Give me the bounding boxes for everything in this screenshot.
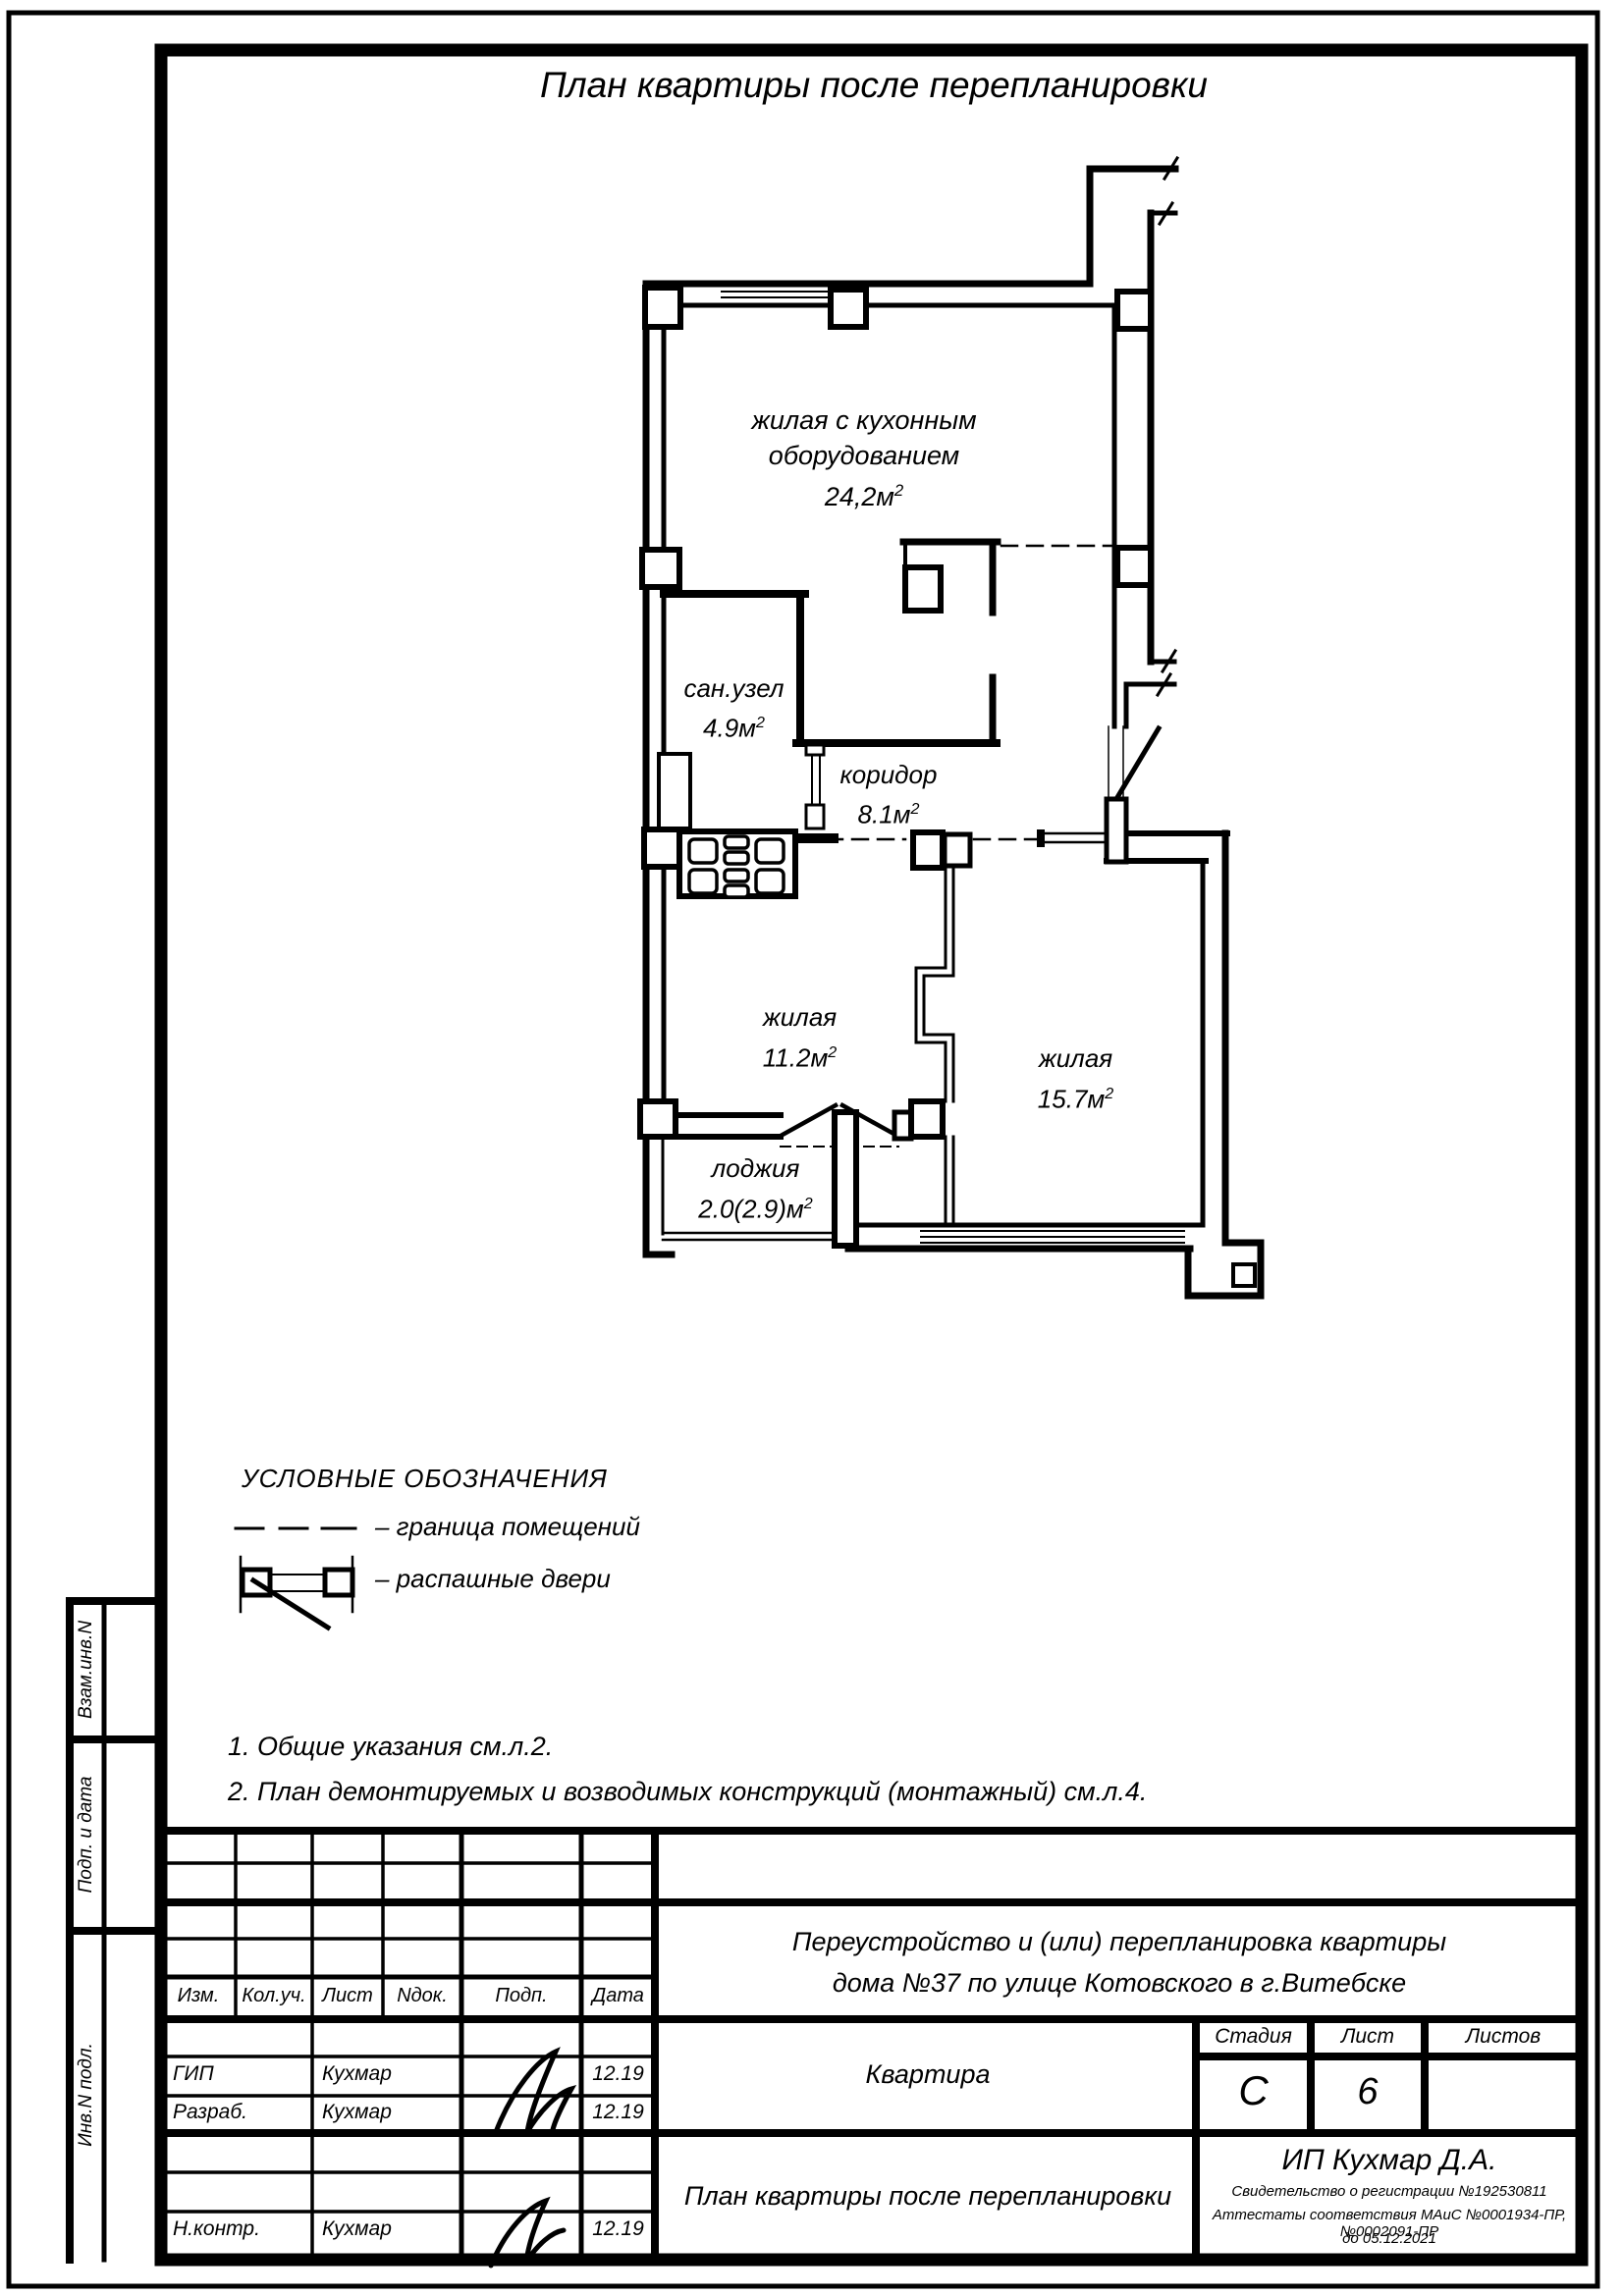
room-label-bathroom: сан.узел 4.9м2 [648, 671, 820, 746]
tb-col-list: Лист [313, 1985, 382, 2007]
room-label-loggia: лоджия 2.0(2.9)м2 [660, 1150, 851, 1227]
tb-project-line2: дома №37 по улице Котовского в г.Витебск… [668, 1968, 1571, 1999]
tb-row-ncontr-date: 12.19 [582, 2217, 654, 2241]
tb-sheets-label: Листов [1427, 2025, 1580, 2049]
room-label-room-15: жилая 15.7м2 [985, 1041, 1166, 1117]
side-label-podp-data: Подп. и дата [76, 1777, 97, 1894]
tb-drawing-title: План квартиры после перепланировки [668, 2181, 1188, 2212]
legend-item-boundary: – граница помещений [375, 1513, 640, 1542]
room-label-room-11: жилая 11.2м2 [709, 999, 891, 1076]
legend-item-doors: – распашные двери [375, 1565, 611, 1594]
note-2: 2. План демонтируемых и возводимых конст… [228, 1777, 1147, 1807]
cupboard [659, 754, 690, 828]
tb-row-razrab-name: Кухмар [322, 2101, 392, 2124]
tb-col-koluch: Кол.уч. [237, 1985, 311, 2007]
tb-row-razrab-date: 12.19 [582, 2101, 654, 2124]
legend-heading: УСЛОВНЫЕ ОБОЗНАЧЕНИЯ [242, 1465, 608, 1494]
room-label-living-kitchen: жилая с кухонным оборудованием 24,2м2 [687, 402, 1041, 514]
drawing-sheet: План квартиры после перепланировки жилая… [0, 0, 1623, 2296]
tb-row-ncontr-role: Н.контр. [173, 2217, 260, 2241]
side-label-inv: Инв.N подл. [76, 2043, 97, 2147]
tb-row-razrab-role: Разраб. [173, 2101, 247, 2124]
side-label-vzam: Взам.инв.N [76, 1621, 97, 1719]
tb-cert-1: Свидетельство о регистрации №192530811 [1203, 2183, 1576, 2200]
legend-symbols [236, 1528, 355, 1628]
tb-col-data: Дата [582, 1985, 654, 2007]
loggia-door-leaf [783, 1105, 836, 1135]
tb-col-podp: Подп. [462, 1985, 580, 2007]
tb-row-gip-date: 12.19 [582, 2062, 654, 2086]
room-label-corridor: коридор 8.1м2 [800, 758, 977, 832]
tb-row-gip-role: ГИП [173, 2062, 214, 2086]
tb-object: Квартира [668, 2059, 1188, 2090]
tb-row-ncontr-name: Кухмар [322, 2217, 392, 2241]
tb-sheet-label: Лист [1313, 2025, 1423, 2049]
note-1: 1. Общие указания см.л.2. [228, 1732, 553, 1762]
signatures [491, 2052, 571, 2266]
tb-sheet-value: 6 [1313, 2071, 1423, 2114]
tb-stage-value: С [1198, 2067, 1309, 2114]
tb-row-gip-name: Кухмар [322, 2062, 392, 2086]
page-title: План квартиры после перепланировки [481, 65, 1267, 107]
tb-col-ndok: Nдок. [384, 1985, 460, 2007]
tb-company: ИП Кухмар Д.А. [1203, 2144, 1576, 2178]
signature-gip [496, 2052, 571, 2134]
tb-project-line1: Переустройство и (или) перепланировка кв… [668, 1927, 1571, 1957]
tb-col-izm: Изм. [164, 1985, 233, 2007]
tb-cert-3: до 05.12.2021 [1203, 2230, 1576, 2247]
tb-stage-label: Стадия [1198, 2025, 1309, 2049]
